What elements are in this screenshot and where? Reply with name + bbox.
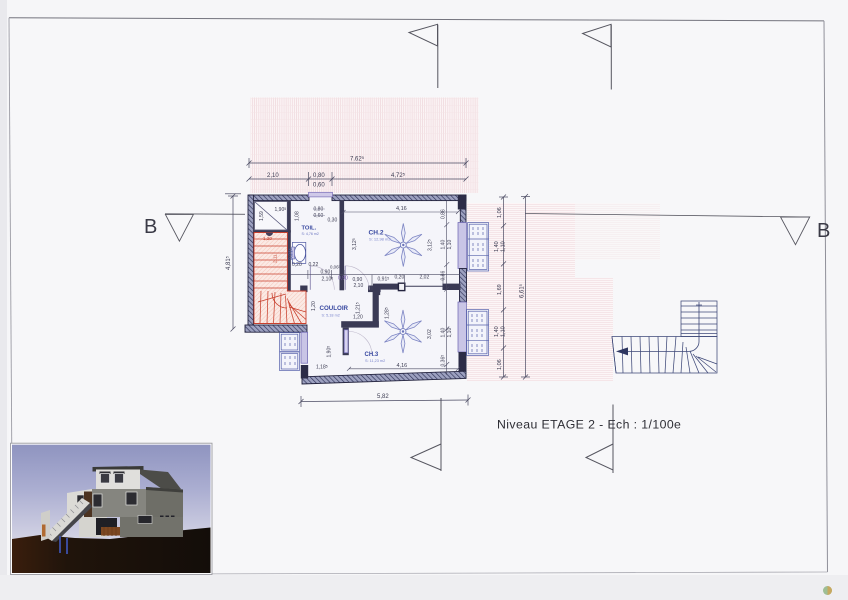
svg-text:1,40: 1,40 [441, 240, 447, 250]
svg-text:B: B [144, 216, 157, 238]
svg-text:1,40: 1,40 [494, 241, 500, 252]
svg-text:0,20: 0,20 [395, 275, 405, 281]
svg-text:1,10: 1,10 [447, 328, 453, 338]
svg-text:TOIL.: TOIL. [302, 226, 317, 232]
svg-text:COULOIR: COULOIR [320, 305, 349, 312]
svg-text:S: 11,23 m2: S: 11,23 m2 [365, 359, 385, 363]
svg-text:2,11: 2,11 [273, 254, 278, 263]
svg-text:1,10: 1,10 [447, 240, 453, 250]
svg-text:1,10: 1,10 [501, 326, 507, 337]
svg-text:1,20: 1,20 [353, 315, 363, 321]
svg-text:1,08: 1,08 [294, 211, 300, 221]
svg-text:1,20: 1,20 [311, 301, 317, 311]
svg-text:1,06: 1,06 [497, 359, 503, 370]
svg-text:0,90: 0,90 [338, 276, 348, 282]
svg-text:S: 4,76 m2: S: 4,76 m2 [302, 232, 319, 236]
svg-text:0,86: 0,86 [441, 209, 447, 219]
svg-text:2,02: 2,02 [420, 275, 430, 281]
svg-text:1,06: 1,06 [497, 207, 503, 218]
svg-text:4,16: 4,16 [397, 363, 408, 369]
svg-text:2,10: 2,10 [354, 283, 364, 289]
svg-text:1,40: 1,40 [441, 328, 447, 338]
svg-text:S: 5,18 m2: S: 5,18 m2 [322, 314, 340, 318]
svg-text:CH.2: CH.2 [369, 230, 384, 237]
svg-text:0,22: 0,22 [309, 262, 319, 268]
svg-text:S: 12,98 m2: S: 12,98 m2 [369, 237, 391, 242]
svg-text:1,20: 1,20 [263, 236, 272, 241]
svg-text:0,60: 0,60 [314, 213, 324, 219]
svg-text:0,80: 0,80 [313, 173, 325, 179]
svg-text:1,59: 1,59 [259, 211, 265, 221]
svg-text:1,10: 1,10 [501, 241, 507, 252]
svg-text:1,69: 1,69 [497, 284, 503, 295]
svg-text:Niveau ETAGE 2 - Ech : 1/100e: Niveau ETAGE 2 - Ech : 1/100e [497, 418, 681, 432]
svg-text:0,20: 0,20 [292, 262, 302, 268]
svg-text:0,80: 0,80 [314, 207, 324, 213]
svg-text:3,02: 3,02 [427, 329, 433, 339]
svg-text:5,82: 5,82 [377, 394, 389, 400]
svg-text:CH.3: CH.3 [365, 352, 379, 358]
svg-text:4,16: 4,16 [396, 206, 407, 212]
svg-text:0,60: 0,60 [313, 183, 325, 189]
svg-text:0,86: 0,86 [441, 271, 447, 281]
svg-text:2,10: 2,10 [267, 173, 279, 179]
svg-text:0,30: 0,30 [328, 218, 338, 224]
svg-text:0,90: 0,90 [321, 270, 331, 276]
svg-text:B: B [817, 220, 830, 242]
svg-text:1,40: 1,40 [494, 326, 500, 337]
